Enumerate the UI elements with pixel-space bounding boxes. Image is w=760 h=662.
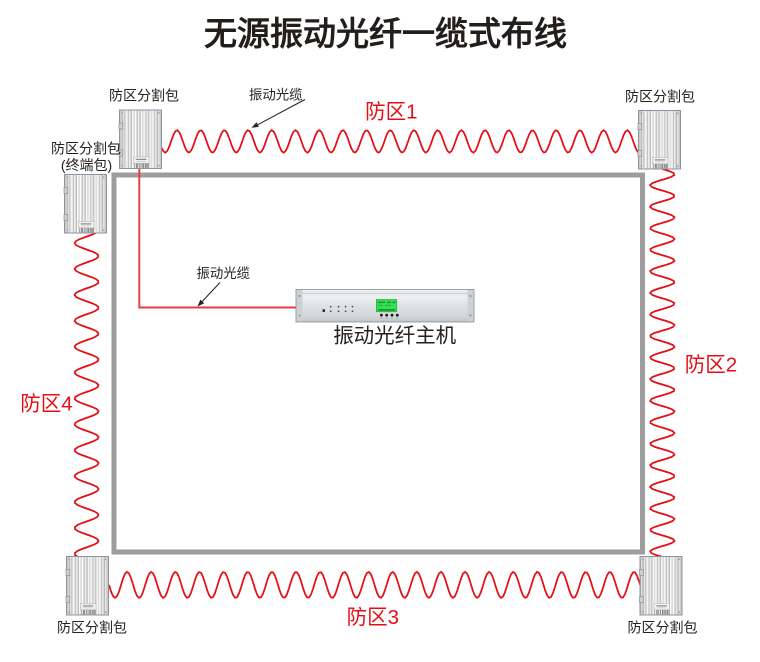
svg-text:防区4: 防区4 [20,393,72,416]
svg-text:防区分割包: 防区分割包 [109,88,179,104]
svg-text:防区分割包: 防区分割包 [625,89,695,105]
svg-text:防区分割包: 防区分割包 [628,620,698,636]
svg-text:防区分割包: 防区分割包 [57,620,127,636]
svg-text:振动光缆: 振动光缆 [197,266,251,281]
svg-text:无源振动光纤一缆式布线: 无源振动光纤一缆式布线 [204,15,567,52]
svg-text:防区2: 防区2 [685,354,737,377]
svg-text:防区1: 防区1 [365,101,417,124]
svg-text:防区3: 防区3 [347,606,399,629]
svg-text:振动光纤主机: 振动光纤主机 [333,325,456,348]
svg-text:(终端包): (终端包) [61,157,112,173]
svg-text:防区分割包: 防区分割包 [51,141,121,157]
svg-text:振动光缆: 振动光缆 [249,87,303,102]
